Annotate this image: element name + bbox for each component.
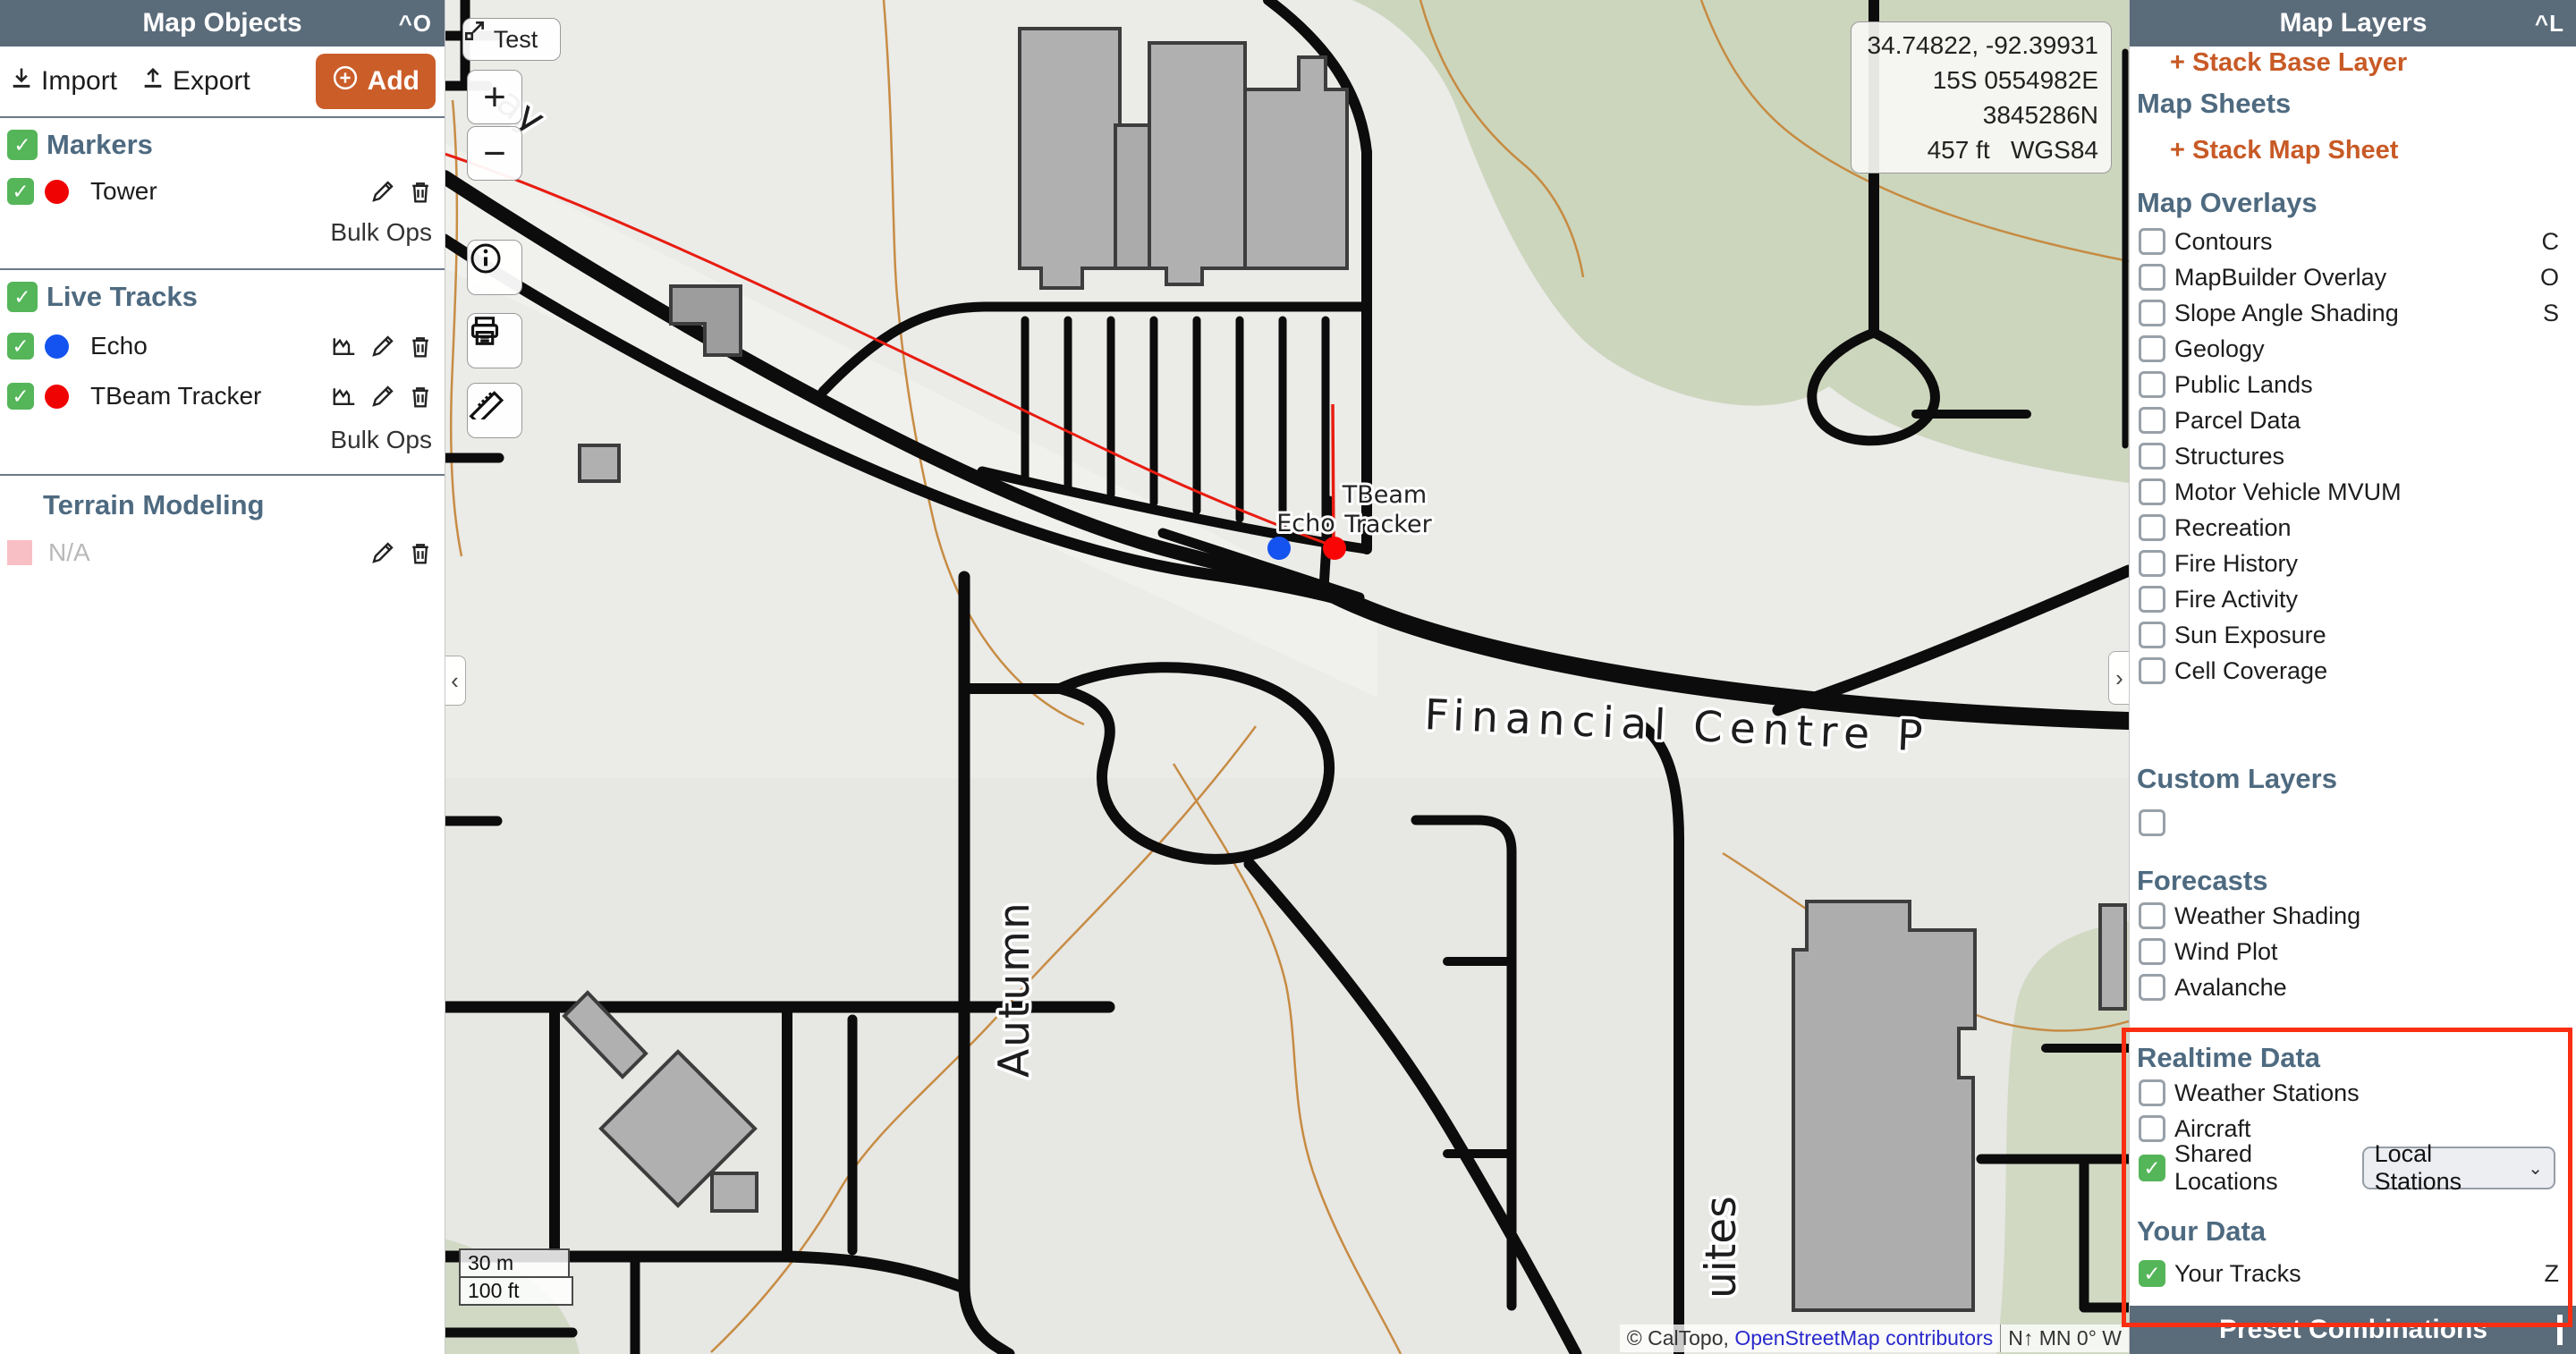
overlay-checkbox[interactable] bbox=[2139, 478, 2165, 505]
collapse-left-panel-button[interactable]: ‹ bbox=[445, 656, 466, 706]
overlay-label: Slope Angle Shading bbox=[2174, 300, 2399, 327]
terrain-row-na[interactable]: N/A bbox=[0, 535, 445, 571]
overlay-label: Fire History bbox=[2174, 550, 2298, 578]
overlay-row[interactable]: Fire Activity bbox=[2130, 581, 2576, 617]
overlay-row[interactable]: Structures bbox=[2130, 438, 2576, 474]
map-layers-header: Map Layers ^L bbox=[2130, 0, 2576, 47]
overlay-checkbox[interactable] bbox=[2139, 407, 2165, 434]
shared-locations-select[interactable]: Local Stations ⌄ bbox=[2362, 1147, 2555, 1189]
export-label: Export bbox=[173, 66, 250, 97]
edit-pencil-icon[interactable] bbox=[369, 178, 396, 205]
attribution-text: © CalTopo, OpenStreetMap contributors bbox=[1620, 1324, 2000, 1352]
tower-visibility-checkbox[interactable] bbox=[7, 178, 34, 205]
delete-trash-icon[interactable] bbox=[407, 333, 434, 360]
preset-combinations-button[interactable]: Preset Combinations bbox=[2130, 1306, 2576, 1354]
scale-bar: 30 m 100 ft bbox=[459, 1248, 573, 1306]
echo-track-dot bbox=[45, 334, 69, 359]
echo-visibility-checkbox[interactable] bbox=[7, 333, 34, 360]
overlay-row[interactable]: Slope Angle Shading S bbox=[2130, 295, 2576, 331]
forecast-label: Avalanche bbox=[2174, 974, 2287, 1002]
overlay-shortcut-key: S bbox=[2543, 300, 2568, 327]
terrain-modeling-heading: Terrain Modeling bbox=[0, 487, 445, 524]
profile-chart-icon[interactable] bbox=[330, 333, 359, 360]
your-data-heading: Your Data bbox=[2130, 1214, 2576, 1248]
overlay-checkbox[interactable] bbox=[2139, 228, 2165, 255]
echo-label: Echo bbox=[1276, 510, 1335, 537]
map-canvas[interactable]: Financial Centre P Autumn uites ay TBeam… bbox=[445, 0, 2129, 1354]
overlay-label: Fire Activity bbox=[2174, 586, 2298, 614]
tower-label: Tower bbox=[80, 177, 157, 206]
chevron-left-icon: ‹ bbox=[451, 667, 459, 695]
weather-stations-checkbox[interactable] bbox=[2139, 1079, 2165, 1106]
overlay-row[interactable]: Recreation bbox=[2130, 510, 2576, 546]
live-tracks-section-heading: Live Tracks bbox=[0, 279, 445, 315]
overlay-checkbox[interactable] bbox=[2139, 443, 2165, 470]
tbeam-label-line2: Tracker bbox=[1343, 511, 1432, 538]
edit-pencil-icon[interactable] bbox=[369, 539, 396, 566]
map-layers-collapse-shortcut[interactable]: ^L bbox=[2535, 10, 2564, 38]
shared-locations-value: Local Stations bbox=[2375, 1140, 2518, 1196]
live-tracks-bulk-ops[interactable]: Bulk Ops bbox=[0, 426, 445, 456]
overlay-row[interactable]: Public Lands bbox=[2130, 367, 2576, 402]
map-sheets-heading: Map Sheets bbox=[2130, 88, 2576, 120]
collapse-right-panel-button[interactable]: › bbox=[2108, 651, 2130, 705]
stack-map-sheet-link[interactable]: + Stack Map Sheet bbox=[2130, 136, 2576, 166]
realtime-data-heading: Realtime Data bbox=[2130, 1041, 2576, 1075]
coord-utm: 15S 0554982E 3845286N bbox=[1860, 63, 2098, 132]
your-tracks-checkbox[interactable] bbox=[2139, 1260, 2165, 1287]
shared-locations-checkbox[interactable] bbox=[2139, 1155, 2165, 1181]
plus-icon: + bbox=[483, 75, 506, 120]
coord-elevation-datum: 457 ft WGS84 bbox=[1860, 132, 2098, 167]
preset-combinations-label: Preset Combinations bbox=[2219, 1315, 2487, 1345]
markers-visibility-checkbox[interactable] bbox=[7, 130, 38, 160]
divider bbox=[0, 268, 445, 270]
edit-pencil-icon[interactable] bbox=[369, 383, 396, 410]
measure-button[interactable] bbox=[467, 383, 522, 438]
overlay-checkbox[interactable] bbox=[2139, 586, 2165, 613]
tbeam-visibility-checkbox[interactable] bbox=[7, 383, 34, 410]
scale-imperial: 100 ft bbox=[459, 1276, 573, 1306]
markers-section-heading: Markers bbox=[0, 127, 445, 163]
overlay-checkbox[interactable] bbox=[2139, 657, 2165, 684]
forecasts-heading: Forecasts bbox=[2130, 864, 2576, 898]
forecast-checkbox[interactable] bbox=[2139, 902, 2165, 929]
custom-layer-row[interactable] bbox=[2130, 805, 2576, 841]
tbeam-position-dot[interactable] bbox=[1323, 537, 1346, 560]
map-objects-collapse-shortcut[interactable]: ^O bbox=[399, 10, 432, 38]
overlay-label: Recreation bbox=[2174, 514, 2292, 542]
overlay-label: Cell Coverage bbox=[2174, 657, 2327, 685]
markers-bulk-ops[interactable]: Bulk Ops bbox=[0, 218, 445, 249]
map-render: Financial Centre P Autumn uites ay TBeam… bbox=[445, 0, 2129, 1354]
overlay-row[interactable]: Cell Coverage bbox=[2130, 653, 2576, 689]
markers-heading-label: Markers bbox=[47, 129, 153, 161]
forecast-row[interactable]: Avalanche bbox=[2130, 969, 2576, 1005]
delete-trash-icon[interactable] bbox=[407, 178, 434, 205]
overlay-row[interactable]: Geology bbox=[2130, 331, 2576, 367]
tower-marker-dot bbox=[45, 180, 69, 204]
osm-link[interactable]: OpenStreetMap contributors bbox=[1734, 1326, 1993, 1350]
street-label-suites: uites bbox=[1697, 1196, 1746, 1299]
live-tracks-visibility-checkbox[interactable] bbox=[7, 282, 38, 312]
shared-locations-row[interactable]: Shared Locations Local Stations ⌄ bbox=[2130, 1147, 2576, 1189]
forecast-checkbox[interactable] bbox=[2139, 938, 2165, 965]
map-layers-title: Map Layers bbox=[2279, 8, 2427, 38]
terrain-heading-label: Terrain Modeling bbox=[43, 489, 264, 521]
custom-layers-heading: Custom Layers bbox=[2130, 762, 2576, 796]
scrollbar-thumb[interactable] bbox=[2557, 1315, 2563, 1345]
profile-chart-icon[interactable] bbox=[330, 383, 359, 410]
overlay-checkbox[interactable] bbox=[2139, 550, 2165, 577]
map-objects-panel: Map Objects ^O Import Export Add Markers bbox=[0, 0, 445, 1354]
overlay-label: Contours bbox=[2174, 228, 2273, 256]
map-objects-title: Map Objects bbox=[142, 8, 301, 38]
map-overlays-heading: Map Overlays bbox=[2130, 186, 2576, 220]
add-label: Add bbox=[368, 66, 419, 97]
test-button[interactable]: Test bbox=[462, 18, 561, 61]
delete-trash-icon[interactable] bbox=[407, 539, 434, 566]
forecast-label: Weather Shading bbox=[2174, 902, 2360, 930]
overlay-checkbox[interactable] bbox=[2139, 514, 2165, 541]
caltopo-credit: © CalTopo, bbox=[1627, 1326, 1729, 1350]
overlay-shortcut-key: C bbox=[2542, 228, 2569, 256]
caltopo-app: Financial Centre P Autumn uites ay TBeam… bbox=[0, 0, 2576, 1354]
import-label: Import bbox=[41, 66, 117, 97]
overlay-label: Public Lands bbox=[2174, 371, 2313, 399]
echo-label: Echo bbox=[80, 332, 148, 360]
custom-layer-checkbox[interactable] bbox=[2139, 809, 2165, 836]
objects-toolbar: Import Export Add bbox=[0, 47, 445, 116]
map-overlays-list: Contours C MapBuilder Overlay O Slope An… bbox=[2130, 220, 2576, 689]
overlay-label: Sun Exposure bbox=[2174, 622, 2326, 649]
shared-locations-label: Shared Locations bbox=[2174, 1140, 2353, 1196]
plus-circle-icon bbox=[332, 64, 359, 98]
overlay-row[interactable]: Parcel Data bbox=[2130, 402, 2576, 438]
overlay-label: Geology bbox=[2174, 335, 2265, 363]
echo-position-dot[interactable] bbox=[1267, 537, 1291, 560]
terrain-na-label: N/A bbox=[43, 538, 90, 567]
overlay-checkbox[interactable] bbox=[2139, 335, 2165, 362]
overlay-label: MapBuilder Overlay bbox=[2174, 264, 2386, 292]
overlay-label: Parcel Data bbox=[2174, 407, 2301, 435]
import-button[interactable]: Import bbox=[9, 65, 117, 97]
map-attribution: © CalTopo, OpenStreetMap contributors N↑… bbox=[1620, 1324, 2129, 1352]
your-tracks-label: Your Tracks bbox=[2174, 1260, 2301, 1288]
coord-latlon: 34.74822, -92.39931 bbox=[1860, 28, 2098, 63]
street-label-autumn: Autumn bbox=[990, 901, 1039, 1078]
track-row-echo[interactable]: Echo bbox=[0, 327, 445, 365]
chevron-down-icon: ⌄ bbox=[2528, 1157, 2543, 1180]
minus-icon: − bbox=[483, 131, 506, 176]
scale-metric: 30 m bbox=[459, 1248, 570, 1276]
zoom-in-button[interactable]: + bbox=[467, 70, 522, 124]
print-button[interactable] bbox=[467, 313, 522, 368]
terrain-color-swatch bbox=[7, 540, 32, 565]
add-object-button[interactable]: Add bbox=[316, 54, 436, 109]
live-tracks-heading-label: Live Tracks bbox=[47, 281, 198, 313]
overlay-shortcut-key: O bbox=[2540, 264, 2568, 292]
aircraft-label: Aircraft bbox=[2174, 1115, 2251, 1143]
info-button[interactable] bbox=[467, 240, 522, 295]
tbeam-label: TBeam Tracker bbox=[80, 382, 261, 410]
divider bbox=[0, 474, 445, 476]
weather-stations-label: Weather Stations bbox=[2174, 1079, 2360, 1107]
map-layers-panel: Map Layers ^L + Stack Base Layer Map She… bbox=[2129, 0, 2576, 1354]
stack-base-layer-link[interactable]: + Stack Base Layer bbox=[2130, 48, 2576, 79]
tbeam-track-dot bbox=[45, 385, 69, 409]
overlay-checkbox[interactable] bbox=[2139, 622, 2165, 648]
forecast-checkbox[interactable] bbox=[2139, 974, 2165, 1001]
overlay-checkbox[interactable] bbox=[2139, 371, 2165, 398]
divider bbox=[0, 116, 445, 118]
your-tracks-shortcut-key: Z bbox=[2545, 1260, 2569, 1288]
tbeam-label-line1: TBeam bbox=[1342, 481, 1427, 509]
marker-row-tower[interactable]: Tower bbox=[0, 172, 445, 211]
aircraft-checkbox[interactable] bbox=[2139, 1115, 2165, 1142]
weather-stations-row[interactable]: Weather Stations bbox=[2130, 1075, 2576, 1111]
overlay-row[interactable]: MapBuilder Overlay O bbox=[2130, 259, 2576, 295]
test-button-label: Test bbox=[494, 26, 538, 54]
forecast-row[interactable]: Wind Plot bbox=[2130, 934, 2576, 969]
zoom-out-button[interactable]: − bbox=[467, 126, 522, 181]
your-tracks-row[interactable]: Your Tracks Z bbox=[2130, 1256, 2576, 1291]
coordinate-readout: 34.74822, -92.39931 15S 0554982E 3845286… bbox=[1851, 21, 2112, 173]
map-objects-header: Map Objects ^O bbox=[0, 0, 445, 47]
delete-trash-icon[interactable] bbox=[407, 383, 434, 410]
overlay-label: Motor Vehicle MVUM bbox=[2174, 478, 2402, 506]
forecasts-list: Weather Shading Wind Plot Avalanche bbox=[2130, 898, 2576, 1005]
upload-icon bbox=[140, 65, 165, 97]
forecast-label: Wind Plot bbox=[2174, 938, 2278, 966]
forecast-row[interactable]: Weather Shading bbox=[2130, 898, 2576, 934]
track-row-tbeam[interactable]: TBeam Tracker bbox=[0, 377, 445, 415]
overlay-checkbox[interactable] bbox=[2139, 300, 2165, 326]
overlay-row[interactable]: Sun Exposure bbox=[2130, 617, 2576, 653]
export-button[interactable]: Export bbox=[140, 65, 250, 97]
overlay-label: Structures bbox=[2174, 443, 2284, 470]
coord-elevation: 457 ft bbox=[1928, 136, 1990, 164]
chevron-right-icon: › bbox=[2115, 664, 2123, 692]
edit-pencil-icon[interactable] bbox=[369, 333, 396, 360]
compass-declination: N↑ MN 0° W bbox=[2000, 1324, 2129, 1352]
coord-datum: WGS84 bbox=[2011, 136, 2098, 164]
overlay-row[interactable]: Contours C bbox=[2130, 224, 2576, 259]
overlay-row[interactable]: Motor Vehicle MVUM bbox=[2130, 474, 2576, 510]
overlay-checkbox[interactable] bbox=[2139, 264, 2165, 291]
download-icon bbox=[9, 65, 34, 97]
overlay-row[interactable]: Fire History bbox=[2130, 546, 2576, 581]
